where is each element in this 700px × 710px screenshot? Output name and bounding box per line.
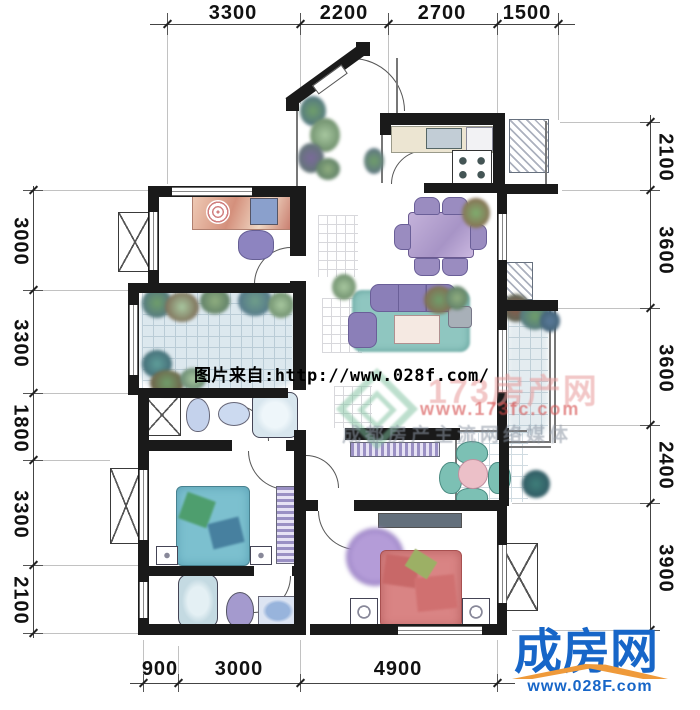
dining-chair [414, 258, 440, 276]
sink-2 [258, 596, 298, 626]
wall-bed2-bottom-a [138, 566, 254, 576]
dim-line-left [33, 186, 34, 638]
extension-line [36, 460, 110, 461]
extension-line [497, 28, 498, 114]
nightstand [156, 546, 178, 565]
wall-master-top-b [354, 500, 507, 511]
plant [522, 470, 550, 498]
dim-label-right-3: 3600 [654, 329, 677, 409]
master-east-window [498, 545, 507, 603]
extension-line [167, 28, 168, 184]
floorplan-image: 3300 2200 2700 1500 3000 3300 1800 3300 … [0, 0, 700, 710]
extension-line [558, 28, 559, 120]
wall-kitchen-bottom [424, 183, 504, 193]
site-watermark-slogan: 成都房产主流网络媒体 [342, 420, 572, 447]
dim-line-bottom [130, 683, 515, 684]
bathtub-2 [178, 574, 218, 628]
watermark-caption: 图片来自:http://www.028f.com/ [194, 361, 489, 386]
site-watermark-url: www.173fc.com [420, 399, 580, 420]
extension-line [36, 190, 148, 191]
toilet-1 [186, 398, 210, 432]
toilet-2 [226, 592, 254, 628]
extension-line [36, 565, 138, 566]
study-side-window [149, 212, 158, 270]
dim-label-top-4: 1500 [487, 2, 567, 25]
foyer-wall [396, 58, 398, 114]
bath2-window [139, 582, 148, 618]
tea-table [458, 459, 488, 489]
wall-kitchen-left-stub [380, 113, 391, 135]
entry-side-wall [296, 107, 298, 187]
living-east-window [498, 214, 507, 260]
plantroom-window [129, 305, 138, 375]
plant [165, 292, 199, 322]
dim-label-bottom-3: 4900 [358, 658, 438, 681]
master-cabinet [378, 513, 462, 528]
wall-study-bottom [148, 283, 306, 293]
dim-line-right [650, 115, 651, 638]
dim-label-left-4: 3300 [9, 475, 32, 555]
hall-tile-sketch [318, 215, 358, 277]
wall-bottom-west [138, 624, 298, 635]
plant [316, 158, 340, 180]
ac-platform-left-top [118, 212, 152, 272]
dining-chair [470, 224, 487, 250]
wall-cap [356, 42, 370, 56]
extension-line [562, 190, 648, 191]
extension-line [560, 122, 648, 123]
extension-line [36, 633, 138, 634]
bed-master-blanket [414, 574, 457, 612]
study-window [172, 187, 252, 196]
extension-line [36, 290, 128, 291]
nightstand [250, 546, 272, 565]
dim-label-bottom-2: 3000 [199, 658, 279, 681]
wall-right-step [497, 184, 558, 194]
bedroom2-window [139, 470, 148, 540]
kitchen-sink [426, 128, 462, 149]
dim-label-right-4: 2400 [654, 426, 677, 506]
wall-cap [286, 98, 299, 111]
dim-label-right-5: 3900 [654, 529, 677, 609]
extension-line [512, 503, 648, 504]
dining-chair [394, 224, 411, 250]
wall-hall-vertical [294, 430, 306, 635]
wall-plantroom-bottom [138, 388, 288, 398]
dim-label-bottom-1: 900 [120, 658, 200, 681]
dining-chair [442, 258, 468, 276]
dim-label-top-1: 3300 [193, 2, 273, 25]
wall-study-right [290, 186, 306, 256]
bedroom2-door-arc [248, 451, 287, 490]
extension-line [36, 393, 138, 394]
plant [462, 198, 490, 228]
study-desk-ornament [206, 200, 230, 224]
dining-chair [414, 197, 440, 215]
dressing-door-arc [306, 455, 339, 488]
wall-balcony-top [505, 300, 558, 311]
plant [540, 310, 560, 332]
extension-line [558, 308, 648, 309]
right-thin-wall [545, 121, 547, 187]
living-coffee-table [394, 315, 440, 344]
brand-url: www.028F.com [510, 678, 670, 696]
dim-label-left-1: 3000 [9, 202, 32, 282]
plant [332, 274, 356, 300]
dim-label-left-5: 2100 [9, 561, 32, 641]
flue-shaft-topright [509, 119, 549, 173]
brand-logo: 成房网 www.028F.com [510, 612, 680, 704]
study-chair [238, 230, 274, 260]
wall-kitchen-right [493, 113, 505, 193]
wall-bath1-bottom-a [138, 440, 232, 451]
nightstand [350, 598, 378, 626]
dim-label-top-2: 2200 [304, 2, 384, 25]
plant [446, 286, 468, 310]
kitchen-stove [452, 150, 492, 185]
wall-kitchen-top [380, 113, 504, 125]
study-cabinet [250, 198, 278, 225]
kitchen-door-arc [391, 150, 425, 184]
living-armchair [348, 312, 377, 348]
dim-label-right-2: 3600 [654, 211, 677, 291]
nightstand [462, 598, 490, 626]
plant [268, 292, 294, 318]
dim-label-left-3: 1800 [9, 389, 32, 469]
kitchen-fridge [466, 127, 493, 151]
plant [364, 148, 384, 174]
bathtub-1 [252, 392, 298, 438]
wall-master-top-a [300, 500, 318, 511]
master-bottom-window [398, 626, 482, 635]
brand-name: 成房网 [514, 612, 658, 682]
dim-label-left-2: 3300 [9, 304, 32, 384]
dim-label-right-1: 2100 [654, 118, 677, 198]
sink-1 [218, 402, 250, 426]
dim-label-top-3: 2700 [402, 2, 482, 25]
